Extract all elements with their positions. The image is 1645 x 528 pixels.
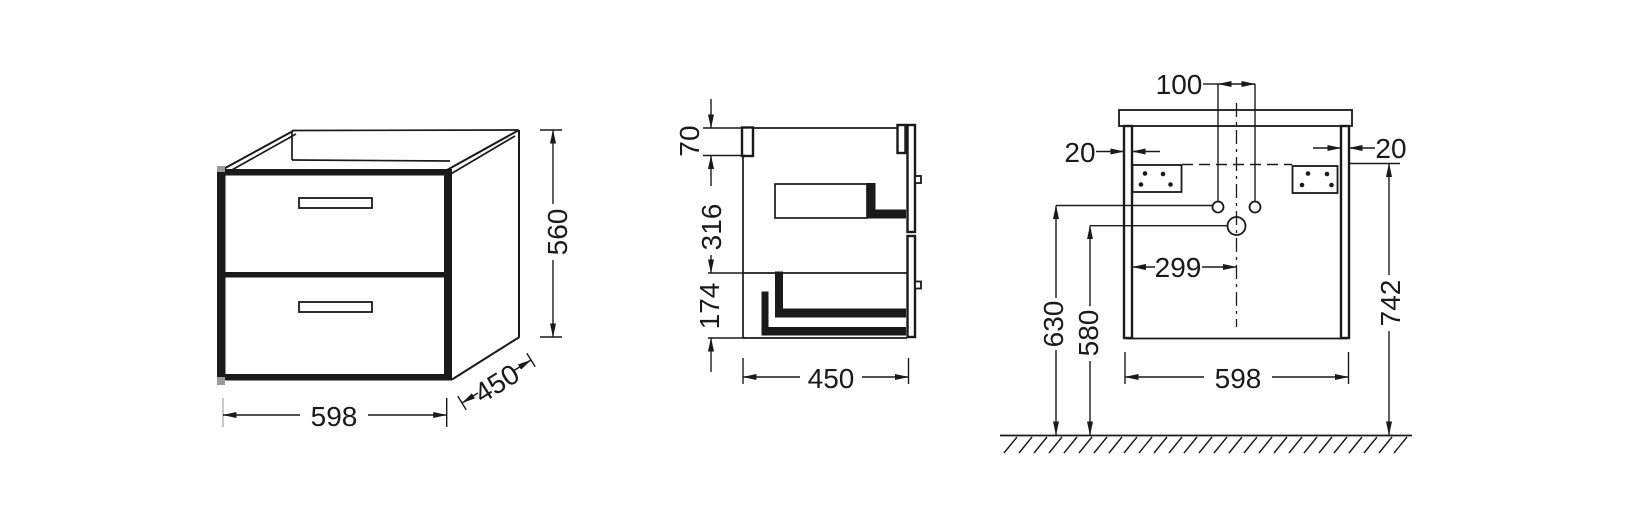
lower-drawer-front xyxy=(908,236,916,337)
dim-side-thickness-left-label: 20 xyxy=(1064,137,1095,168)
back-rail-bottom-edge xyxy=(292,160,450,161)
upper-drawer-bracket xyxy=(867,183,907,219)
dim-hole-spacing-label: 100 xyxy=(1156,69,1203,100)
technical-drawing-canvas: 598 560 450 70 xyxy=(0,0,1645,528)
upper-drawer-front xyxy=(908,125,916,232)
drawing-svg: 598 560 450 70 xyxy=(0,0,1645,528)
right-panel-top-inner-edge xyxy=(449,136,515,175)
siphon-hole-left xyxy=(1213,202,1224,213)
cabinet-left-edge xyxy=(217,168,226,380)
screw-dot xyxy=(1161,172,1166,177)
screw-dot xyxy=(1143,171,1148,176)
dim-basin-zone-label: 316 xyxy=(696,204,727,251)
left-panel-top-edge xyxy=(223,131,294,170)
cabinet-bottom-edge xyxy=(226,374,453,381)
dim-fixing-height-label: 742 xyxy=(1375,280,1406,327)
dim-depth-label: 450 xyxy=(469,358,525,409)
dim-elevation-width-label: 598 xyxy=(1215,363,1262,394)
mounting-plate-left xyxy=(1133,165,1182,192)
corner-artifact-bottom xyxy=(217,377,225,385)
ground-hatching xyxy=(1004,437,1407,453)
screw-dot xyxy=(1139,182,1144,187)
left-side-panel xyxy=(1124,126,1132,338)
upper-handle-profile xyxy=(915,176,921,183)
corner-artifact-top xyxy=(217,166,225,172)
back-rail-top-edge xyxy=(292,130,518,131)
screw-dot xyxy=(1300,183,1305,188)
dim-center-offset-label: 299 xyxy=(1155,252,1202,283)
side-section-view: 70 316 174 450 xyxy=(674,99,921,394)
left-panel-top-inner-edge xyxy=(230,134,296,171)
right-side-panel xyxy=(1341,126,1349,338)
mounting-plate-right xyxy=(1293,166,1338,193)
dim-450p-line-right xyxy=(514,360,531,371)
dim-siphon-height-label: 630 xyxy=(1038,301,1069,348)
countertop-panel xyxy=(1119,110,1352,126)
lower-handle-profile xyxy=(915,282,921,289)
lower-drawer-rail-inner xyxy=(775,272,906,318)
front-perspective-view: 598 560 450 xyxy=(217,130,573,432)
lower-drawer-handle xyxy=(299,302,372,312)
right-panel-top-edge xyxy=(447,130,519,170)
front-elevation-view: 100 20 20 299 630 580 742 598 xyxy=(1000,69,1412,453)
screw-dot xyxy=(1325,172,1330,177)
screw-dot xyxy=(1168,182,1173,187)
wall-mount-rail xyxy=(742,128,753,157)
screw-dot xyxy=(1306,171,1311,176)
dim-outlet-height-label: 580 xyxy=(1073,310,1104,357)
dim-height-label: 560 xyxy=(542,209,573,256)
dim-rail-height-label: 70 xyxy=(674,125,705,156)
drawer-divider xyxy=(226,272,453,278)
cabinet-right-edge xyxy=(444,169,452,381)
front-top-rail xyxy=(898,125,906,153)
upper-drawer-handle xyxy=(299,198,372,208)
dim-width-label: 598 xyxy=(311,401,358,432)
dim-side-thickness-right-label: 20 xyxy=(1375,133,1406,164)
upper-drawer-box xyxy=(775,184,867,218)
cabinet-top-edge xyxy=(226,169,453,176)
dim-section-depth-label: 450 xyxy=(808,363,855,394)
siphon-hole-right xyxy=(1250,202,1261,213)
dim-lower-zone-label: 174 xyxy=(694,283,725,330)
screw-dot xyxy=(1329,183,1334,188)
